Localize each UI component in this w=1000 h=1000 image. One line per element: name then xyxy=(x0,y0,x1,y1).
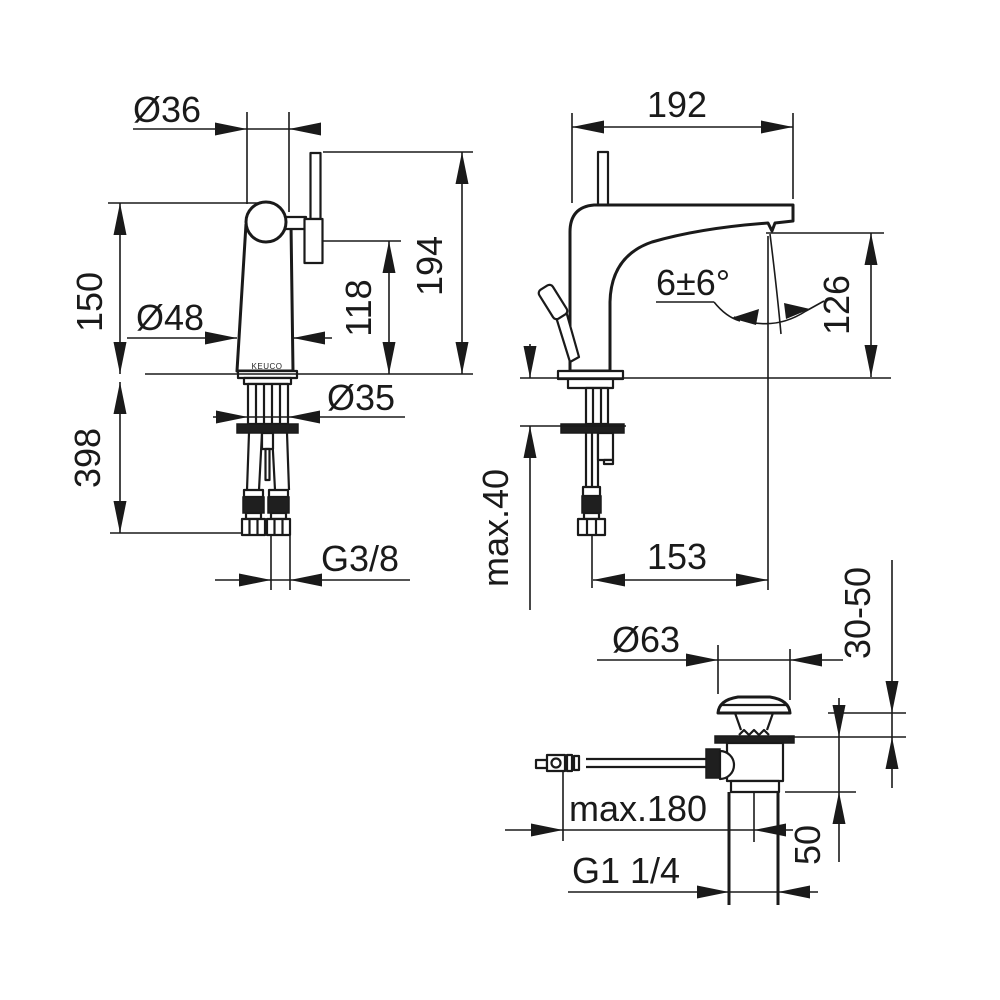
dim-front-upper-height: 150 xyxy=(69,203,258,374)
dim-label-drain-cap-diameter: Ø63 xyxy=(612,619,680,660)
pull-rod-tip xyxy=(536,760,547,768)
dim-drain-cap-diameter: Ø63 xyxy=(597,619,843,700)
lever-top-front xyxy=(311,153,321,219)
lever-pin-side xyxy=(598,152,608,206)
dim-drain-mount-range: 30-50 xyxy=(788,560,906,788)
hose-band-side xyxy=(583,487,600,496)
popup-rod-block xyxy=(262,433,273,449)
dim-label-side-reach: 192 xyxy=(647,84,707,125)
dim-label-side-counter-thickness: max.40 xyxy=(475,469,516,587)
pull-rod-band-2 xyxy=(574,756,579,770)
dim-label-side-outlet-height: 126 xyxy=(816,275,857,335)
dim-label-front-total-height: 194 xyxy=(409,236,450,296)
dim-label-front-shank-diameter: Ø35 xyxy=(327,377,395,418)
waste-body-step xyxy=(731,781,779,792)
waste-body xyxy=(727,743,783,781)
dim-side-outlet-offset: 153 xyxy=(592,535,768,588)
dim-drain-body-height: 50 xyxy=(785,698,856,865)
dim-label-front-upper-height: 150 xyxy=(69,272,110,332)
technical-drawing: KEUCO Ø36 150 Ø48 118 194 xyxy=(0,0,1000,1000)
hose-nut-right xyxy=(267,519,290,535)
dim-drain-waste-thread: G1 1/4 xyxy=(568,850,818,899)
pull-rod-band-1 xyxy=(567,755,572,771)
cartridge-ball-front xyxy=(246,202,286,242)
dim-front-top-diameter: Ø36 xyxy=(133,89,321,212)
faucet-body-front xyxy=(237,224,293,371)
hose-nut-side xyxy=(578,519,605,535)
pull-rod xyxy=(586,759,706,767)
dim-front-spout-height: 118 xyxy=(323,241,401,374)
rod-joint-block xyxy=(706,749,720,778)
mounting-bracket-side xyxy=(598,433,613,460)
popup-neck xyxy=(735,713,773,730)
dim-label-side-outlet-offset: 153 xyxy=(647,536,707,577)
pull-rod-pivot-hole xyxy=(552,759,561,768)
dim-front-supply-thread: G3/8 xyxy=(215,536,410,590)
front-view: KEUCO Ø36 150 Ø48 118 194 xyxy=(67,89,473,590)
dim-front-shank-diameter: Ø35 xyxy=(213,377,405,424)
mounting-shank-side xyxy=(586,388,608,424)
hose-nut-left xyxy=(242,519,265,535)
base-plate-lower-side xyxy=(568,379,613,388)
dim-label-drain-mount-range: 30-50 xyxy=(837,567,878,659)
dim-front-below-counter: 398 xyxy=(67,382,243,533)
hose-thread-left xyxy=(243,497,264,513)
side-view: 192 126 6±6° max.40 153 xyxy=(475,84,891,610)
dim-label-front-top-diameter: Ø36 xyxy=(133,89,201,130)
lever-grip-front xyxy=(305,219,323,263)
dim-label-front-spout-height: 118 xyxy=(338,279,379,336)
mounting-shank-front xyxy=(248,384,288,424)
popup-seal xyxy=(739,730,769,735)
brand-logo: KEUCO xyxy=(252,362,283,371)
bracket-foot xyxy=(604,460,613,464)
horseshoe-washer-front xyxy=(237,424,298,433)
popup-rod-pin xyxy=(266,449,270,480)
dim-label-drain-waste-thread: G1 1/4 xyxy=(572,850,680,891)
drawing-page: KEUCO Ø36 150 Ø48 118 194 xyxy=(0,0,1000,1000)
hose-fitting-right-band xyxy=(269,490,288,497)
dim-label-front-body-diameter: Ø48 xyxy=(136,297,204,338)
side-handle-knob xyxy=(537,283,569,320)
dim-label-side-stream-angle: 6±6° xyxy=(656,262,730,303)
hose-thread-right xyxy=(268,497,289,513)
dim-label-drain-body-height: 50 xyxy=(787,825,828,865)
dim-label-front-supply-thread: G3/8 xyxy=(321,538,399,579)
dim-front-body-diameter: Ø48 xyxy=(127,297,332,345)
hose-fitting-left-band xyxy=(244,490,263,497)
supply-hose-side xyxy=(586,433,598,487)
hose-thread-side xyxy=(582,496,601,513)
dim-label-front-below-counter: 398 xyxy=(67,428,108,488)
dim-label-drain-rod-reach: max.180 xyxy=(569,788,707,829)
drain-view: Ø63 30-50 50 max.180 G1 1/4 xyxy=(505,560,906,905)
